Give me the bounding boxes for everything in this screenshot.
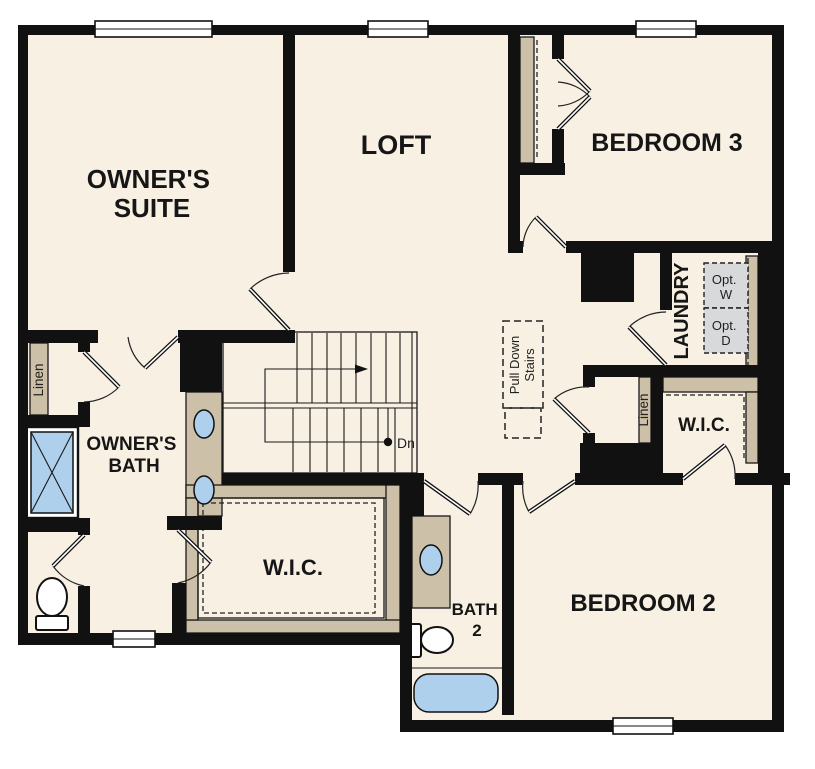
bathtub xyxy=(414,674,498,712)
floor-plan-drawing: OWNER'S SUITE LOFT BEDROOM 3 LAUNDRY Opt… xyxy=(0,0,815,769)
linen-hall-label: Linen xyxy=(636,393,651,426)
pull-down-stairs-label2: Stairs xyxy=(522,348,537,382)
window xyxy=(95,21,212,37)
stairs-down-label: Dn xyxy=(397,435,415,451)
toilet-water-closet xyxy=(36,578,68,630)
pull-down-stairs-label: Pull Down xyxy=(507,336,522,395)
sink-basin xyxy=(194,410,214,438)
wic-bedroom2-label: W.I.C. xyxy=(678,415,730,436)
bedroom2-label: BEDROOM 2 xyxy=(570,590,715,617)
sink-basin xyxy=(194,476,214,504)
bedroom3-closet-shelf xyxy=(520,37,534,163)
bedroom3-label: BEDROOM 3 xyxy=(591,129,742,157)
loft-label: LOFT xyxy=(361,130,432,160)
window xyxy=(113,631,155,647)
wic-owner-label: W.I.C. xyxy=(263,555,323,580)
sink-basin xyxy=(420,545,442,575)
shower xyxy=(26,427,78,518)
wic-bedroom2-shelf-top xyxy=(663,377,758,392)
window xyxy=(636,21,696,37)
linen-owner-label: Linen xyxy=(31,363,46,396)
wic-bedroom2-shelf-right xyxy=(746,392,758,463)
window xyxy=(613,718,673,734)
window xyxy=(368,21,428,37)
floor-plan-page: OWNER'S SUITE LOFT BEDROOM 3 LAUNDRY Opt… xyxy=(0,0,815,769)
laundry-label: LAUNDRY xyxy=(671,262,693,360)
